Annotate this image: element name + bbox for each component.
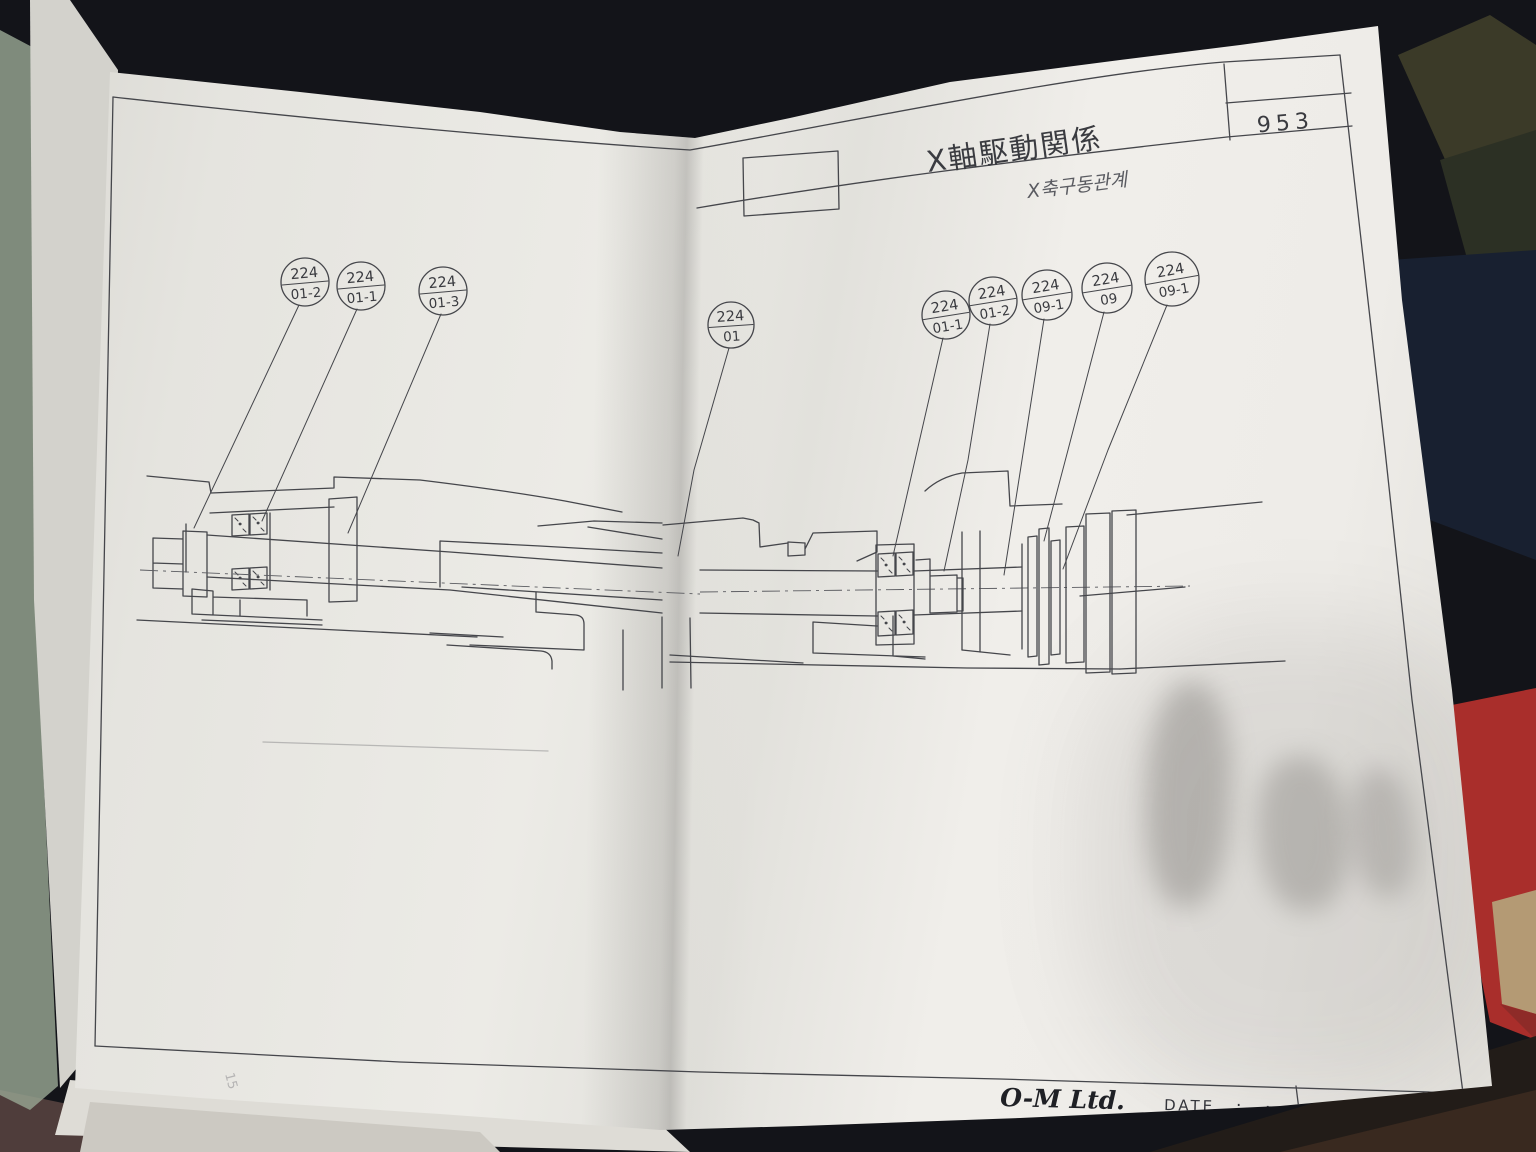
catalog-page: 953 X軸駆動関係 X축구동관계 224 01-2 bbox=[0, 0, 1536, 1152]
part-balloon: 224 01 bbox=[708, 302, 754, 348]
leader-line bbox=[944, 324, 990, 571]
company-logo: O-M Ltd. bbox=[1000, 1083, 1125, 1115]
part-balloon: 224 09 bbox=[1081, 263, 1134, 313]
leader-line bbox=[678, 348, 729, 556]
leader-lines bbox=[194, 305, 1167, 575]
page-title: X軸駆動関係 bbox=[924, 121, 1104, 179]
svg-text:01-3: 01-3 bbox=[428, 294, 460, 313]
leader-line bbox=[1004, 319, 1044, 575]
ballscrew-shaft bbox=[207, 535, 662, 613]
leader-line bbox=[1063, 305, 1167, 569]
right-bearing-assembly bbox=[663, 471, 1062, 659]
margin-pencil-mark: 15 bbox=[221, 1071, 240, 1091]
part-balloon: 224 01-1 bbox=[921, 291, 972, 339]
coupling-and-motor-mount bbox=[1022, 502, 1285, 674]
ballscrew-cover bbox=[440, 521, 691, 690]
lock-nut bbox=[916, 559, 963, 613]
angular-bearing-pair bbox=[878, 552, 913, 636]
handwritten-annotation: X축구동관계 bbox=[1025, 169, 1131, 204]
leader-line bbox=[893, 338, 943, 556]
svg-text:224: 224 bbox=[428, 274, 457, 292]
part-balloon: 224 09-1 bbox=[1144, 252, 1201, 306]
svg-text:01-2: 01-2 bbox=[290, 285, 322, 304]
part-balloon: 224 01-3 bbox=[419, 267, 468, 315]
leader-line bbox=[1044, 312, 1104, 541]
svg-text:01-1: 01-1 bbox=[931, 317, 964, 338]
svg-text:01-2: 01-2 bbox=[978, 303, 1011, 324]
part-balloons: 224 01-2 224 01-1 224 bbox=[281, 252, 1201, 348]
coupling-discs bbox=[1022, 528, 1060, 665]
photo-of-parts-catalog: 953 X軸駆動関係 X축구동관계 224 01-2 bbox=[0, 0, 1536, 1152]
svg-text:09-1: 09-1 bbox=[1032, 297, 1065, 318]
empty-title-cell bbox=[743, 151, 839, 216]
part-balloon: 224 01-1 bbox=[337, 262, 386, 310]
drawing-frame bbox=[95, 55, 1463, 1093]
left-bearing-assembly bbox=[147, 476, 662, 625]
svg-text:224: 224 bbox=[290, 265, 319, 283]
svg-text:224: 224 bbox=[346, 269, 375, 287]
svg-text:09-1: 09-1 bbox=[1158, 280, 1191, 301]
leader-line bbox=[348, 314, 441, 533]
page-number: 953 bbox=[1256, 109, 1315, 139]
part-balloon: 224 01-2 bbox=[281, 258, 330, 306]
page-number-cell bbox=[1224, 64, 1230, 140]
svg-text:09: 09 bbox=[1099, 291, 1118, 309]
bed-outline bbox=[137, 620, 1120, 751]
svg-text:01: 01 bbox=[723, 328, 741, 345]
part-balloon: 224 01-2 bbox=[968, 277, 1019, 325]
drawing-layer: 953 X軸駆動関係 X축구동관계 224 01-2 bbox=[0, 0, 1536, 1152]
svg-text:01-1: 01-1 bbox=[346, 289, 378, 308]
leader-line bbox=[194, 305, 299, 528]
svg-text:224: 224 bbox=[716, 308, 745, 326]
part-balloon: 224 09-1 bbox=[1021, 270, 1074, 320]
